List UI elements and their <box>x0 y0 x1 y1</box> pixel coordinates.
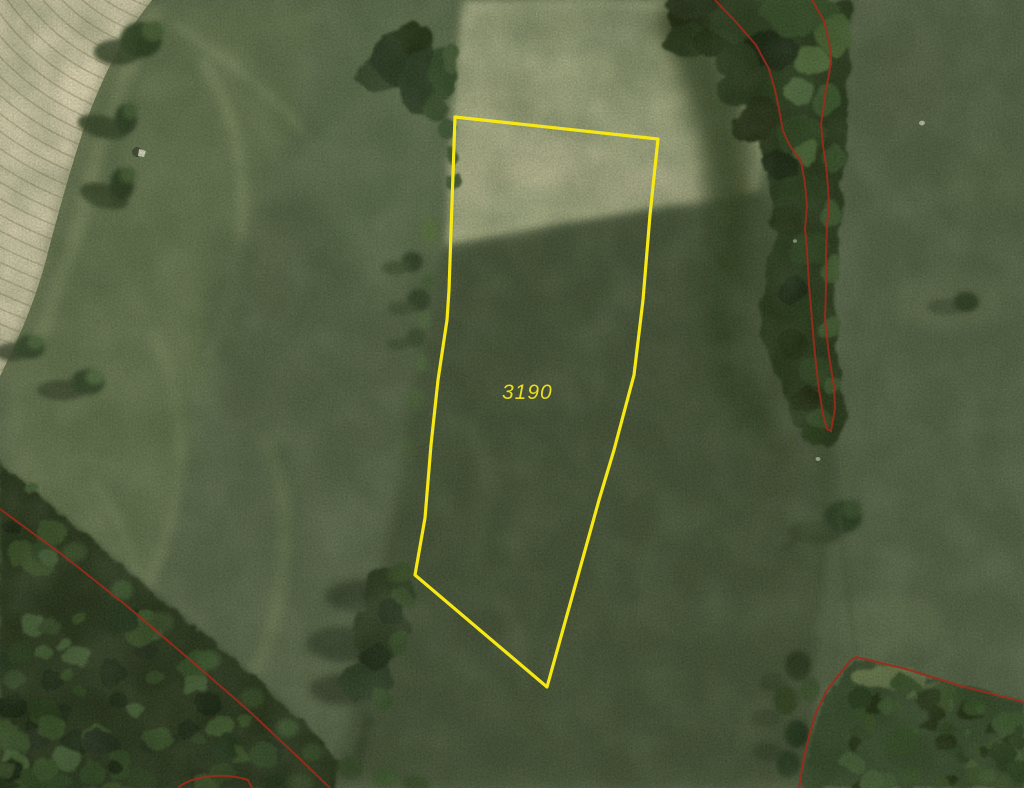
svg-text:3190: 3190 <box>502 381 553 404</box>
